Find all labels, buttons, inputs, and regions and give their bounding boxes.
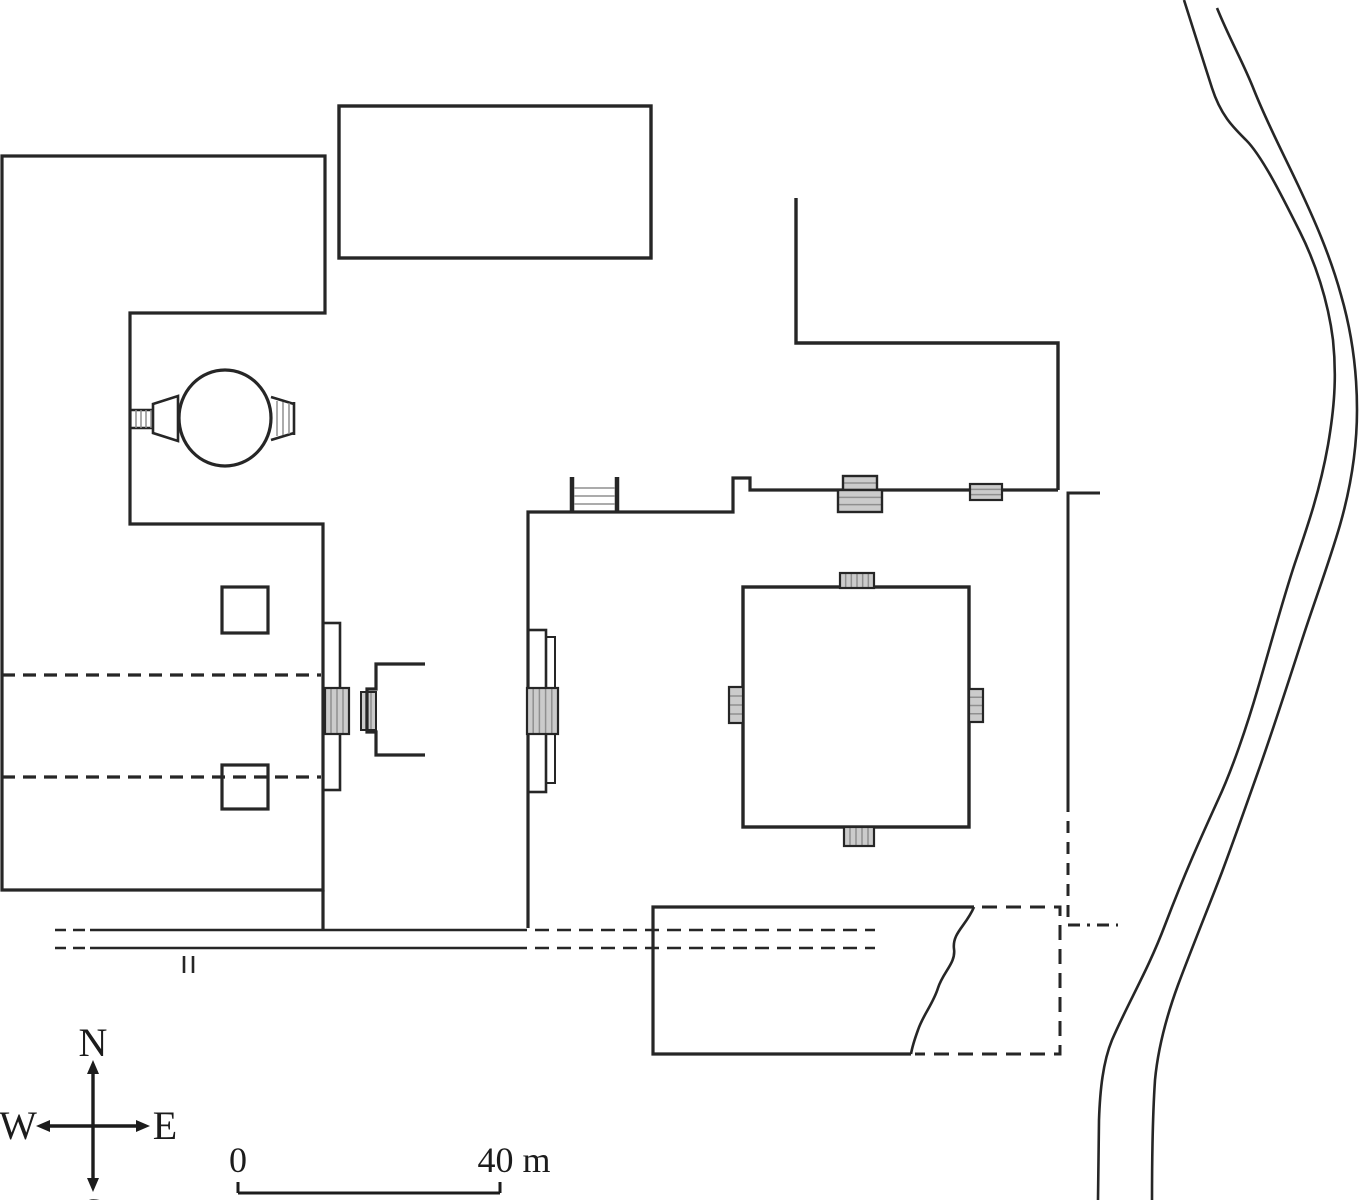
compass-east-arrowhead-icon: [136, 1120, 150, 1132]
south-building-dashed-walls: [915, 907, 1060, 1054]
river-east-bank: [1152, 8, 1357, 1200]
site-plan: N S W E 0 40 m: [0, 0, 1363, 1200]
northeast-courtyard-wall: [796, 198, 1058, 490]
compass-label-west: W: [0, 1103, 37, 1148]
compass-label-east: E: [153, 1103, 177, 1148]
enclosure-north-stair-rungs: [574, 488, 615, 504]
main-shrine-stair-south: [844, 827, 874, 846]
site-plan-svg: N S W E 0 40 m: [0, 0, 1363, 1200]
compass-west-arrowhead-icon: [36, 1120, 50, 1132]
west-building-pillar-south: [222, 765, 268, 809]
south-building-break-line: [911, 907, 974, 1054]
compass-label-north: N: [79, 1020, 108, 1065]
road-tick-marks: [184, 956, 193, 973]
scale-bar: 0 40 m: [229, 1140, 551, 1193]
plan-features: [2, 0, 1357, 1200]
circular-shrine-west-porch: [153, 396, 178, 441]
compass-label-south: S: [82, 1190, 104, 1200]
north-wall-threshold-pad: [970, 484, 1002, 500]
east-annex-wall-solid: [1068, 493, 1100, 800]
enclosure-north-stair-sides: [572, 477, 617, 512]
river-west-bank: [1098, 0, 1335, 1200]
circular-shrine-west-passage-walls: [131, 410, 153, 428]
compass-rose: N S W E: [0, 1020, 177, 1200]
circular-shrine: [179, 370, 271, 466]
east-gate-stair-block: [527, 688, 558, 734]
circular-shrine-west-passage-steps: [136, 410, 151, 428]
main-shrine: [743, 587, 969, 827]
north-gate-stair-lower: [838, 490, 882, 512]
scale-bar-start-label: 0: [229, 1140, 247, 1180]
circular-shrine-east-stair-steps: [277, 401, 289, 436]
compass-cross-lines: [44, 1068, 144, 1184]
west-building-pillar-north: [222, 587, 268, 633]
west-building-outline: [2, 156, 325, 890]
scale-bar-line: [238, 1182, 500, 1193]
north-hall: [339, 106, 651, 258]
scale-bar-end-label: 40 m: [477, 1140, 550, 1180]
